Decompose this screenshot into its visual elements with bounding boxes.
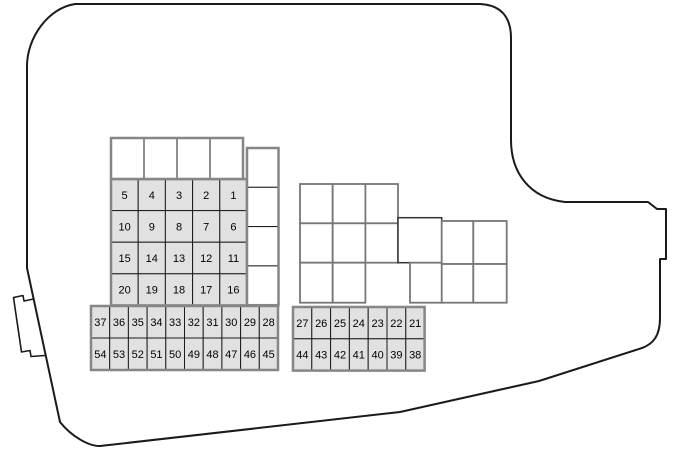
- fuse-53-label: 53: [113, 349, 125, 361]
- fuse-27-label: 27: [296, 318, 308, 330]
- relay-cell-7: [300, 263, 333, 303]
- fuse-13-label: 13: [173, 253, 185, 265]
- fuse-9-label: 9: [149, 221, 155, 233]
- fuse-8-label: 8: [176, 221, 182, 233]
- fuse-49-label: 49: [188, 349, 200, 361]
- fuse-7-label: 7: [203, 221, 209, 233]
- relay-cell-9: [398, 218, 442, 263]
- fuse-17-label: 17: [200, 285, 212, 297]
- fuse-19-label: 19: [146, 285, 158, 297]
- fuse-50-label: 50: [169, 349, 181, 361]
- right-connector-column-cell-r0c0: [247, 148, 279, 187]
- fuse-42-label: 42: [334, 350, 346, 362]
- relay-cell-5: [333, 223, 366, 262]
- fuse-14-label: 14: [146, 253, 158, 265]
- fuse-35-label: 35: [132, 317, 144, 329]
- fuse-38-label: 38: [409, 350, 421, 362]
- top-connector-row-cell-r0c2: [177, 138, 210, 179]
- relay-cell-11: [442, 221, 474, 264]
- fuse-33-label: 33: [169, 317, 181, 329]
- right-connector-column-cell-r2c0: [247, 227, 279, 266]
- fuse-16-label: 16: [227, 285, 239, 297]
- fuse-4-label: 4: [149, 190, 155, 202]
- top-connector-row-cell-r0c1: [144, 138, 177, 179]
- relay-cell-10: [410, 263, 443, 303]
- fuse-15-label: 15: [118, 253, 130, 265]
- fuse-41-label: 41: [353, 350, 365, 362]
- top-connector-row-cell-r0c0: [111, 138, 144, 179]
- right-connector-column-cell-r1c0: [247, 187, 279, 226]
- fuse-28-label: 28: [263, 317, 275, 329]
- fuse-24-label: 24: [353, 318, 365, 330]
- fuse-26-label: 26: [315, 318, 327, 330]
- cells-layer: 5432110987615141312112019181716373635343…: [91, 138, 507, 371]
- fuse-6-label: 6: [230, 221, 236, 233]
- fuse-39-label: 39: [390, 350, 402, 362]
- relay-cell-8: [333, 263, 366, 303]
- fuse-31-label: 31: [206, 317, 218, 329]
- fuse-52-label: 52: [132, 349, 144, 361]
- relay-cell-13: [442, 264, 474, 303]
- fuse-25-label: 25: [334, 318, 346, 330]
- top-connector-row-cell-r0c3: [210, 138, 243, 179]
- fuse-45-label: 45: [263, 349, 275, 361]
- fuse-box-diagram: 5432110987615141312112019181716373635343…: [0, 0, 678, 450]
- relay-cell-14: [473, 264, 506, 303]
- fuse-34-label: 34: [150, 317, 162, 329]
- fuse-54-label: 54: [94, 349, 106, 361]
- right-connector-column-cell-r3c0: [247, 266, 279, 305]
- fuse-5-label: 5: [122, 190, 128, 202]
- fuse-43-label: 43: [315, 350, 327, 362]
- fuse-29-label: 29: [244, 317, 256, 329]
- fuse-47-label: 47: [225, 349, 237, 361]
- fuse-11-label: 11: [228, 253, 239, 265]
- fuse-30-label: 30: [225, 317, 237, 329]
- fuse-box-svg: 5432110987615141312112019181716373635343…: [0, 0, 678, 450]
- fuse-44-label: 44: [296, 350, 308, 362]
- fuse-21-label: 21: [409, 318, 421, 330]
- fuse-3-label: 3: [176, 190, 182, 202]
- relay-cell-1: [300, 184, 333, 223]
- fuse-18-label: 18: [173, 285, 185, 297]
- relay-cell-12: [473, 221, 506, 264]
- fuse-36-label: 36: [113, 317, 125, 329]
- relay-cell-6: [365, 223, 398, 262]
- relay-cell-2: [333, 184, 366, 223]
- fuse-10-label: 10: [118, 221, 130, 233]
- fuse-1-label: 1: [230, 190, 236, 202]
- fuse-23-label: 23: [371, 318, 383, 330]
- fuse-20-label: 20: [118, 285, 130, 297]
- fuse-22-label: 22: [390, 318, 402, 330]
- fuse-32-label: 32: [188, 317, 200, 329]
- relay-cell-3: [365, 184, 398, 223]
- fuse-12-label: 12: [200, 253, 212, 265]
- fuse-2-label: 2: [203, 190, 209, 202]
- fuse-40-label: 40: [371, 350, 383, 362]
- fuse-51-label: 51: [150, 349, 162, 361]
- fuse-37-label: 37: [94, 317, 106, 329]
- relay-cell-4: [300, 223, 333, 262]
- fuse-48-label: 48: [206, 349, 218, 361]
- fuse-46-label: 46: [244, 349, 256, 361]
